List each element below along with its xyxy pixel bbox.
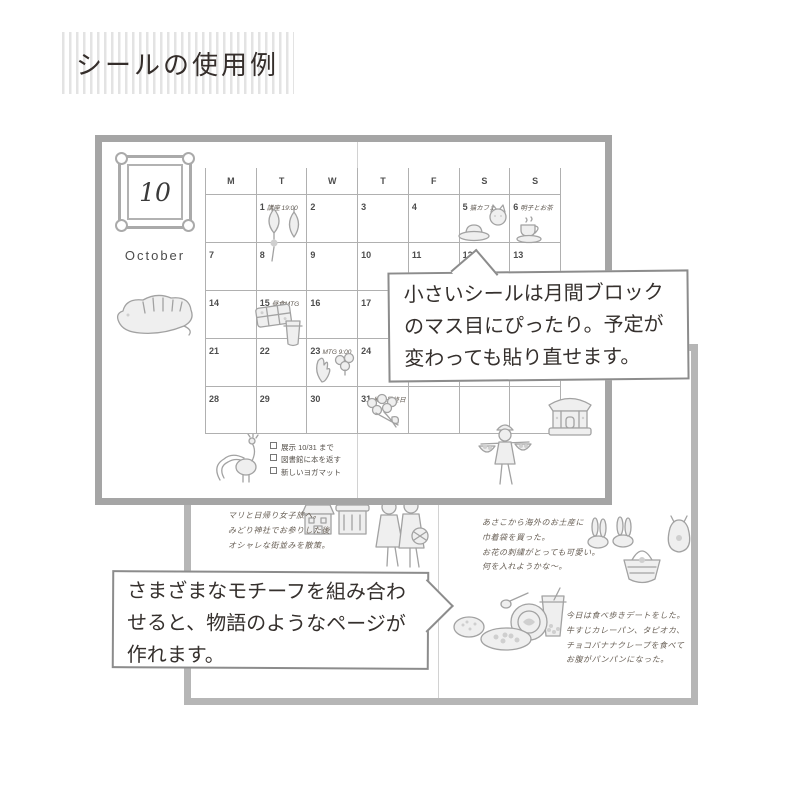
weekday-header: F: [409, 168, 460, 194]
badge-corner-dot: [182, 219, 195, 232]
calendar-cell: 21: [206, 338, 257, 386]
basket-vendor-sticker: [477, 418, 533, 501]
month-name: October: [112, 248, 198, 263]
checkbox-icon: [270, 467, 277, 474]
callout-motif-story: さまざまなモチーフを組み合わ せると、物語のようなページが 作れます。: [112, 570, 430, 670]
calendar-cell: 30: [307, 386, 358, 434]
month-badge-sticker: 10: [118, 155, 192, 229]
calendar-cell: 4: [409, 194, 460, 242]
callout-text: 小さいシールは月間ブロック のマス目にぴったり。予定が 変わっても貼り直せます。: [404, 277, 674, 376]
drink-cup-sticker: [282, 318, 304, 353]
todo-item: 展示 10/31 まで: [270, 442, 341, 454]
flower-bouquet-sticker: [362, 393, 406, 436]
title-band: シールの使用例: [62, 32, 294, 94]
calendar-cell: 3: [358, 194, 409, 242]
tiger-sticker: [112, 286, 198, 343]
weekday-header: T: [358, 168, 409, 194]
strolling-couple-sticker: [366, 494, 430, 575]
trip-note: マリと日帰り女子旅へ。 みどり神社でお参りした後 オシャレな街並みを散策。: [228, 509, 330, 553]
drawstring-pouch-sticker: [660, 514, 698, 561]
badge-corner-dot: [182, 152, 195, 165]
todo-item: 新しいヨガマット: [270, 467, 341, 479]
calendar-cell: 28: [206, 386, 257, 434]
badge-month-number: 10: [139, 178, 171, 207]
todo-item: 図書館に本を返す: [270, 454, 341, 466]
callout-monthly-block: 小さいシールは月間ブロック のマス目にぴったり。予定が 変わっても貼り直せます。: [387, 269, 689, 382]
badge-corner-dot: [115, 219, 128, 232]
peacock-sticker: [214, 434, 266, 491]
curry-bread-sticker: [450, 613, 488, 646]
weekday-header: T: [257, 168, 308, 194]
food-note: 今日は食べ歩きデートをした。 牛すじカレーパン、タピオカ、 チョコバナナクレープ…: [566, 609, 685, 668]
cat-sticker: [484, 203, 512, 232]
temple-building-sticker: [543, 388, 597, 449]
weekday-header: M: [206, 168, 257, 194]
calendar-cell: 9: [307, 242, 358, 290]
calendar-cell: 7: [206, 242, 257, 290]
teacup-sticker: [514, 216, 546, 249]
page-title: シールの使用例: [62, 45, 279, 82]
calendar-cell: [409, 386, 460, 434]
souvenir-note: あさこから海外のお土産に 巾着袋を買った。 お花の刺繍がとっても可愛い。 何を入…: [482, 516, 600, 575]
callout-text: さまざまなモチーフを組み合わ せると、物語のようなページが 作れます。: [127, 575, 414, 673]
weekday-header: W: [307, 168, 358, 194]
checkbox-icon: [270, 442, 277, 449]
paper-lanterns-sticker: [262, 203, 306, 272]
berry-plant-sticker: [332, 352, 358, 381]
leaf-plant-sticker: [310, 352, 334, 389]
weekday-header: S: [510, 168, 561, 194]
calendar-cell: 14: [206, 290, 257, 338]
weekday-header: S: [460, 168, 511, 194]
calendar-cell: [206, 194, 257, 242]
calendar-cell: 16: [307, 290, 358, 338]
todo-checklist: 展示 10/31 まで 図書館に本を返す 新しいヨガマット: [270, 442, 341, 479]
checkbox-icon: [270, 454, 277, 461]
calendar-cell: 29: [257, 386, 308, 434]
calendar-cell: 2: [307, 194, 358, 242]
product-photo: シールの使用例 マリと日帰り女子旅へ。 みどり神社でお参りした後 オ: [0, 0, 800, 800]
